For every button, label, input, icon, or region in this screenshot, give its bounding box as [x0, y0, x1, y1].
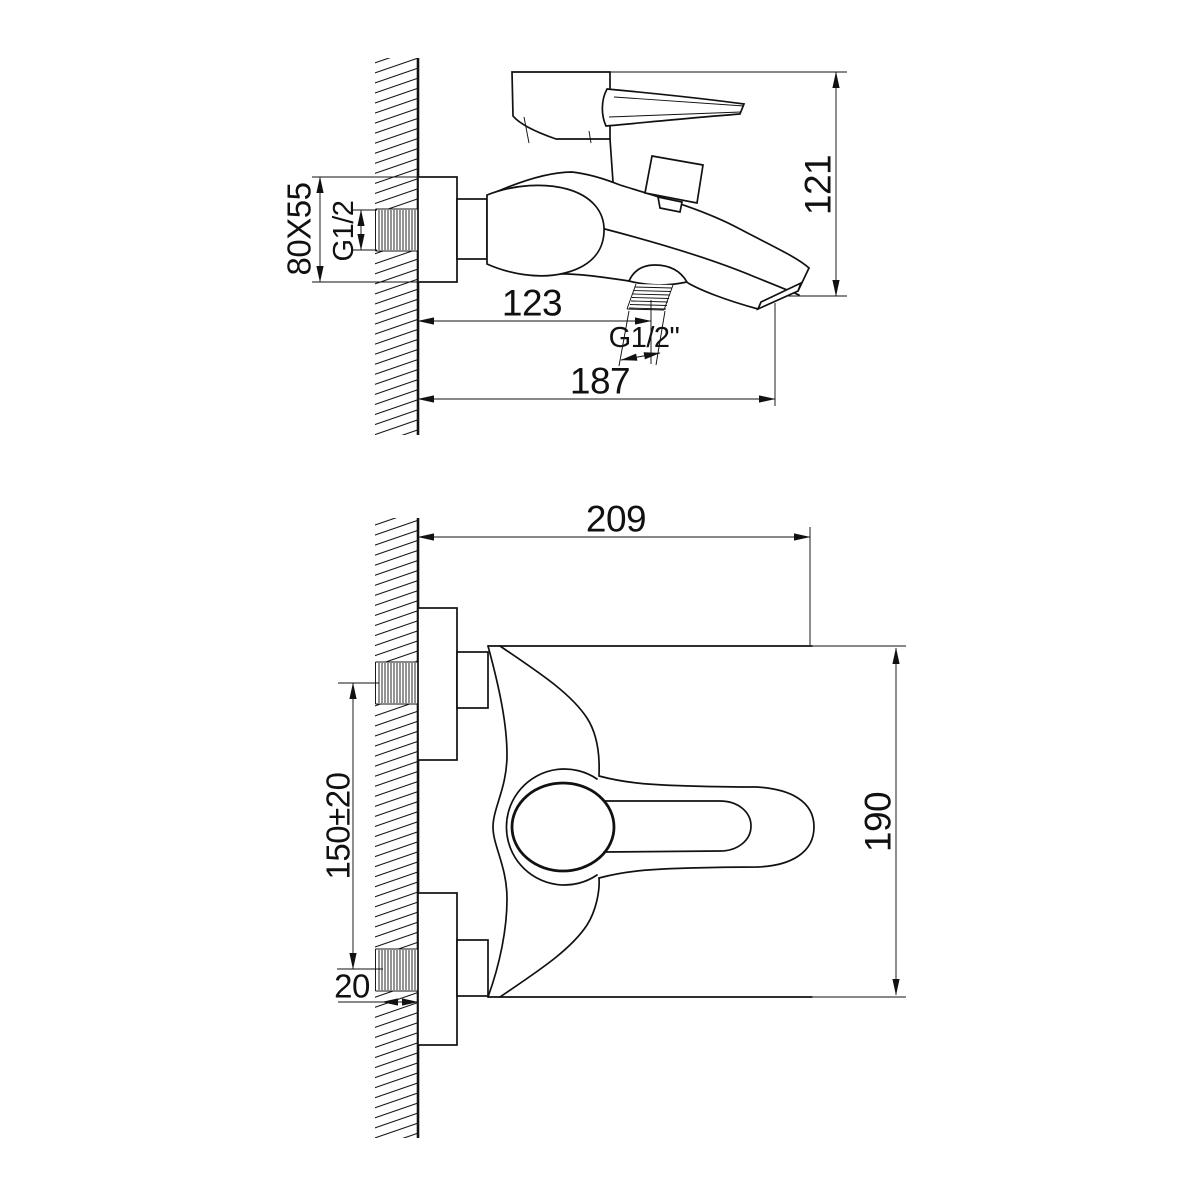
shower-outlet-flange: [629, 265, 687, 285]
faucet-installation-drawing: 80X55 G1/2 121 123 G1/2" 187: [0, 0, 1200, 1200]
plan-body-left-edge: [488, 646, 507, 997]
plan-view: 209 190 150±20 20: [320, 499, 907, 1139]
side-wall-flange: [418, 177, 457, 282]
side-faucet-body: [487, 72, 809, 310]
plan-inlet-thread-top: [376, 662, 419, 704]
plan-body-concave-top: [500, 646, 599, 775]
dim-label-width: 209: [586, 499, 646, 540]
plan-wall-flange-top: [418, 608, 457, 760]
side-inlet-thread: [376, 209, 419, 251]
plan-wall-hatching: [375, 518, 418, 1138]
shower-outlet: [627, 265, 687, 310]
plan-connector-bottom: [457, 940, 488, 996]
plan-connector-top: [457, 652, 488, 708]
dim-label-height: 121: [798, 155, 839, 215]
dim-label-flange: 80X55: [281, 183, 318, 276]
spout-crease-line: [601, 228, 799, 295]
side-connector: [457, 199, 487, 259]
plan-wall-flange-bottom: [418, 893, 457, 1045]
dim-label-inlet-spacing: 150±20: [320, 772, 357, 879]
handle-lever: [602, 89, 744, 126]
handle-dome: [512, 783, 614, 871]
plan-body-concave-bottom: [500, 878, 599, 997]
plan-inlet-thread-bottom: [376, 949, 419, 991]
dim-label-shower-offset: 123: [502, 283, 562, 324]
side-view: 80X55 G1/2 121 123 G1/2" 187: [281, 58, 848, 435]
dim-label-thread-length: 20: [334, 968, 370, 1005]
handle-base-edge: [610, 139, 613, 182]
dim-label-reach: 187: [570, 361, 630, 402]
spout-bottom-edge-right: [688, 283, 758, 309]
dim-label-shower-thread: G1/2": [609, 322, 680, 354]
dim-label-inlet-thread: G1/2: [328, 201, 360, 262]
plan-faucet-body: [488, 646, 814, 997]
technical-drawing-page: 80X55 G1/2 121 123 G1/2" 187: [0, 0, 1200, 1200]
dim-label-depth: 190: [858, 792, 899, 852]
valve-body: [487, 185, 604, 275]
spout-bottom-edge-left: [556, 274, 629, 281]
